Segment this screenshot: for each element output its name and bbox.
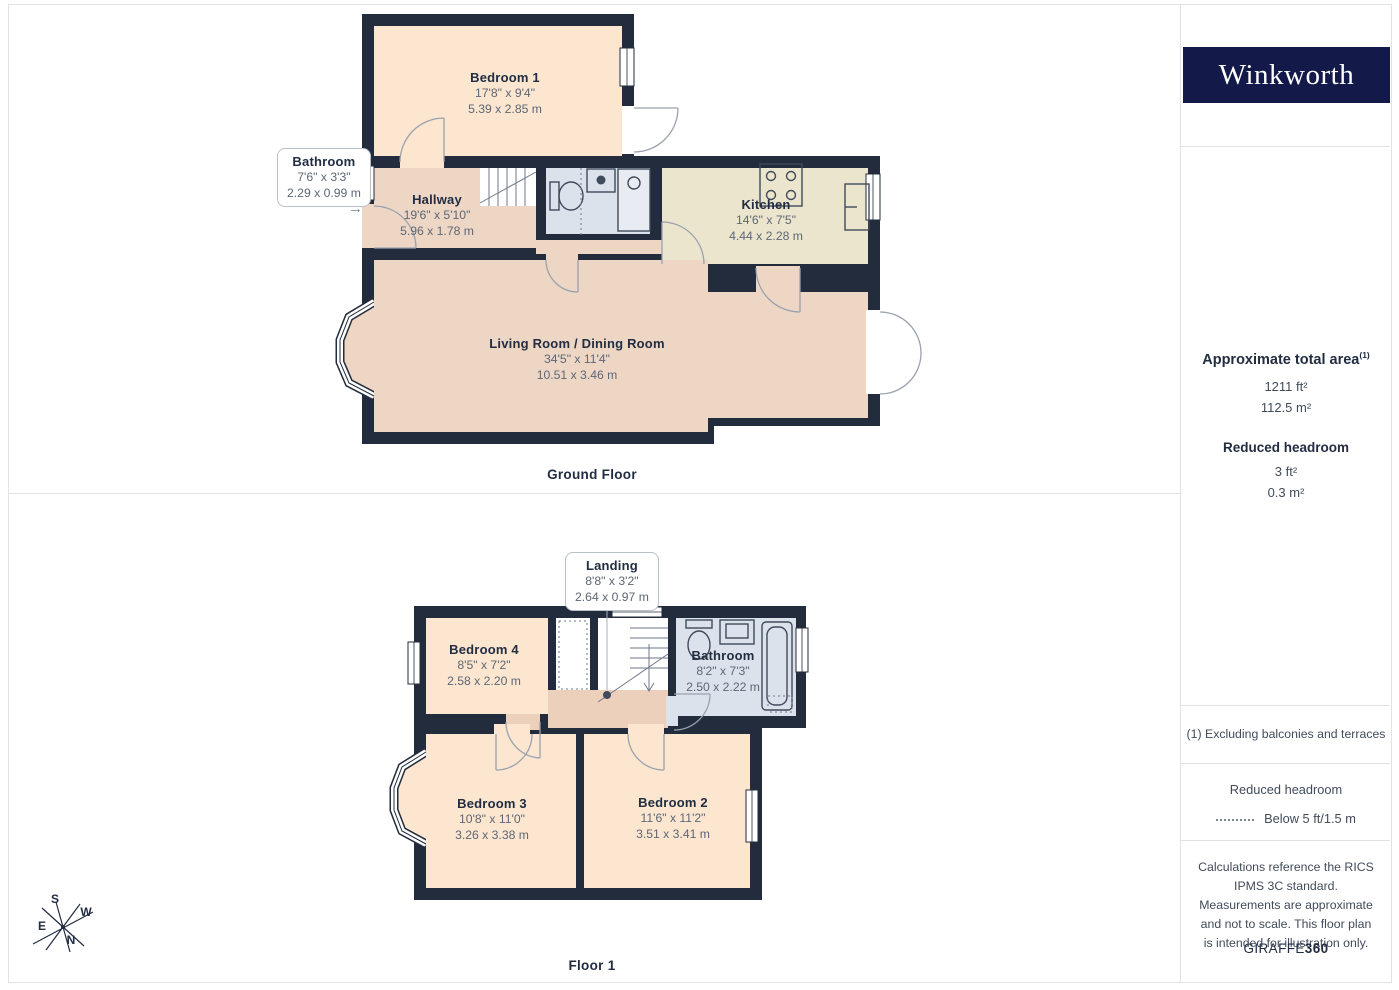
reduced-headroom-heading: Reduced headroom bbox=[1181, 440, 1391, 455]
stairs-ground bbox=[480, 168, 536, 206]
callout-landing: Landing 8'8" x 3'2" 2.64 x 0.97 m bbox=[565, 552, 659, 611]
sidebar-section-divider bbox=[1181, 705, 1390, 706]
legend-block: Reduced headroom Below 5 ft/1.5 m bbox=[1181, 782, 1391, 826]
compass-south: S bbox=[51, 892, 59, 906]
entrance-arrow-icon: → bbox=[348, 200, 363, 217]
ground-floor-title: Ground Floor bbox=[547, 467, 637, 482]
reduced-headroom-ft: 3 ft² bbox=[1181, 462, 1391, 483]
label-bedroom4: Bedroom 4 8'5" x 7'2" 2.58 x 2.20 m bbox=[447, 642, 521, 689]
total-area-m: 112.5 m² bbox=[1181, 398, 1391, 419]
footnote-marker: (1) bbox=[1359, 350, 1369, 360]
sidebar-section-divider bbox=[1181, 763, 1390, 764]
first-floor-title: Floor 1 bbox=[568, 958, 615, 973]
reduced-headroom-m: 0.3 m² bbox=[1181, 483, 1391, 504]
credit-bold: 360 bbox=[1305, 941, 1329, 956]
label-kitchen: Kitchen 14'6" x 7'5" 4.44 x 2.28 m bbox=[729, 197, 803, 244]
label-living-room: Living Room / Dining Room 34'5" x 11'4" … bbox=[489, 336, 664, 383]
stairwell bbox=[598, 618, 668, 702]
disclaimer-text: Calculations reference the RICS IPMS 3C … bbox=[1197, 858, 1375, 953]
sidebar-section-divider bbox=[1181, 146, 1390, 147]
balconies-footnote: (1) Excluding balconies and terraces bbox=[1181, 727, 1391, 741]
compass-east: E bbox=[38, 919, 46, 933]
total-area-heading: Approximate total area bbox=[1202, 352, 1359, 368]
label-bathroom-first: Bathroom 8'2" x 7'3" 2.50 x 2.22 m bbox=[686, 648, 760, 695]
sidebar-section-divider bbox=[1181, 840, 1390, 841]
floor-plan-ground bbox=[0, 0, 1180, 494]
closet bbox=[556, 618, 590, 692]
credit-normal: GIRAFFE bbox=[1243, 941, 1304, 956]
callout-bathroom-ground: Bathroom 7'6" x 3'3" 2.29 x 0.99 m bbox=[277, 148, 371, 207]
total-area-ft: 1211 ft² bbox=[1181, 377, 1391, 398]
legend-heading: Reduced headroom bbox=[1181, 782, 1391, 797]
label-bedroom3: Bedroom 3 10'8" x 11'0" 3.26 x 3.38 m bbox=[455, 796, 529, 843]
logo-text: Winkworth bbox=[1219, 59, 1354, 92]
label-bedroom1: Bedroom 1 17'8" x 9'4" 5.39 x 2.85 m bbox=[468, 70, 542, 117]
legend-label: Below 5 ft/1.5 m bbox=[1264, 811, 1356, 826]
floor-divider bbox=[9, 493, 1180, 494]
label-bedroom2: Bedroom 2 11'6" x 11'2" 3.51 x 3.41 m bbox=[636, 795, 710, 842]
winkworth-logo: Winkworth bbox=[1183, 47, 1390, 103]
label-hallway: Hallway 19'6" x 5'10" 5.96 x 1.78 m bbox=[400, 192, 474, 239]
floorplan-page: Bedroom 1 17'8" x 9'4" 5.39 x 2.85 m Hal… bbox=[0, 0, 1399, 990]
total-area-block: Approximate total area(1) 1211 ft² 112.5… bbox=[1181, 350, 1391, 504]
giraffe360-credit: GIRAFFE360 bbox=[1181, 941, 1391, 956]
compass-west: W bbox=[80, 905, 91, 919]
reduced-headroom-swatch bbox=[1216, 819, 1254, 821]
compass-north: N bbox=[67, 933, 76, 947]
